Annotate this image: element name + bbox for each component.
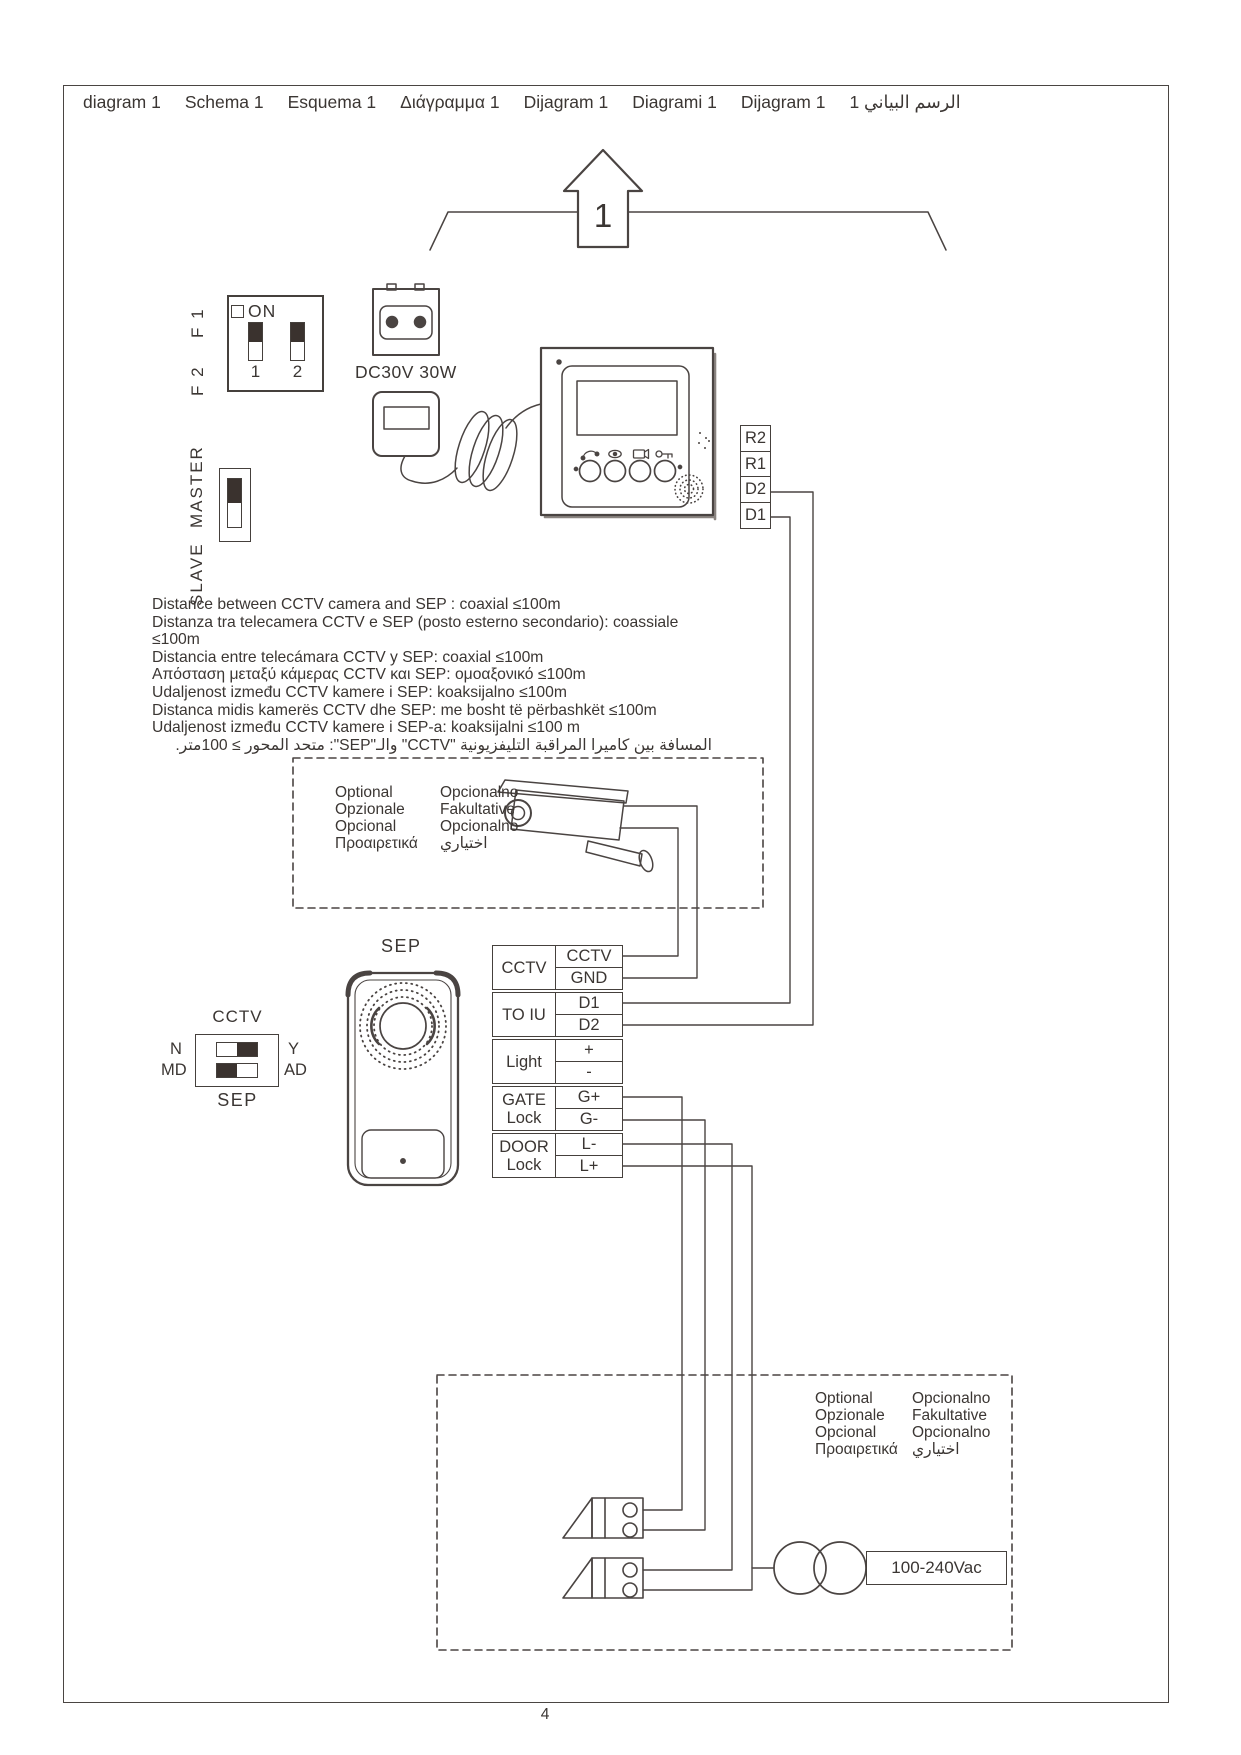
note-line: Distanza tra telecamera CCTV e SEP (post… xyxy=(152,614,712,649)
header-title: Dijagram 1 xyxy=(741,92,826,113)
terminal-group-label: CCTV xyxy=(493,946,556,989)
note-line-arabic: المسافة بين كاميرا المراقبة التليفزيونية… xyxy=(152,737,712,755)
terminal-l-plus: L+ xyxy=(556,1156,622,1177)
bracket-line xyxy=(430,212,946,250)
power-adapter xyxy=(373,392,541,494)
door-station-label: SEP xyxy=(381,936,422,957)
door-camera-lens xyxy=(380,1003,426,1049)
diagram-number: 1 xyxy=(578,197,628,235)
md-ad-switch[interactable] xyxy=(216,1063,258,1078)
wire-d1 xyxy=(623,517,790,1003)
terminal-gnd: GND xyxy=(556,968,622,989)
terminal-group-light: Light + - xyxy=(492,1039,623,1084)
monitor-button xyxy=(605,461,626,482)
intercom-icon xyxy=(634,450,649,459)
terminal-group-door-lock: DOORLock L- L+ xyxy=(492,1133,623,1178)
terminal-l-minus: L- xyxy=(556,1134,622,1156)
wire-gate-plus xyxy=(623,1097,682,1510)
switch-label-md: MD xyxy=(161,1061,187,1080)
switch-label-ad: AD xyxy=(284,1061,307,1080)
transformer-symbol xyxy=(774,1542,866,1594)
dip-switch-1[interactable] xyxy=(248,322,263,361)
header-title: Διάγραμμα 1 xyxy=(400,92,499,113)
note-line: Distanca midis kamerës CCTV dhe SEP: me … xyxy=(152,702,712,720)
master-slave-switch[interactable] xyxy=(219,468,251,542)
dip-label-f2: F 2 xyxy=(188,365,208,396)
manual-page: diagram 1 Schema 1 Esquema 1 Διάγραμμα 1… xyxy=(0,0,1241,1755)
note-line: Απόσταση μεταξύ κάμερας CCTV και SEP: ομ… xyxy=(152,666,712,684)
note-line: Distancia entre telecámara CCTV y SEP: c… xyxy=(152,649,712,667)
wire-gate-minus xyxy=(623,1120,705,1530)
optional-camera-labels-col1: Optional Opzionale Opcional Προαιρετικά xyxy=(335,785,418,853)
switch-label-n: N xyxy=(170,1040,182,1059)
page-number: 4 xyxy=(520,1706,570,1724)
optional-power-labels-col1: Optional Opzionale Opcional Προαιρετικά xyxy=(815,1391,898,1459)
note-line: Distance between CCTV camera and SEP : c… xyxy=(152,596,712,614)
indoor-monitor xyxy=(541,348,715,519)
note-line: Udaljenost između CCTV kamere i SEP: koa… xyxy=(152,684,712,702)
plug-pin xyxy=(387,317,398,328)
terminal-group-label: TO IU xyxy=(493,993,556,1036)
switch-label-y: Y xyxy=(288,1040,299,1059)
terminal-d1: D1 xyxy=(556,993,622,1015)
wiring-diagram-artwork xyxy=(0,0,1241,1755)
terminal-light-plus: + xyxy=(556,1040,622,1062)
terminal-group-label: Light xyxy=(493,1040,556,1083)
monitor-terminal-block: R2 R1 D2 D1 xyxy=(740,427,771,529)
terminal-cctv: CCTV xyxy=(556,946,622,968)
cctv-camera xyxy=(498,780,655,873)
dip-switch-2[interactable] xyxy=(290,322,305,361)
view-icon xyxy=(609,450,621,457)
cord-to-monitor xyxy=(506,404,541,428)
header-title: diagram 1 xyxy=(83,92,161,113)
monitor-button xyxy=(630,461,651,482)
monitor-button xyxy=(580,461,601,482)
header-title: Dijagram 1 xyxy=(524,92,609,113)
optional-power-labels-col2: Opcionalno Fakultative Opcionalno اختيار… xyxy=(912,1391,990,1459)
door-camera-dots xyxy=(360,983,446,1069)
terminal-group-gate-lock: GATELock G+ G- xyxy=(492,1086,623,1131)
door-station xyxy=(348,973,458,1185)
wire-door-minus xyxy=(623,1144,732,1570)
terminal-group-cctv: CCTV CCTV GND xyxy=(492,945,623,990)
cctv-switch-top-label: CCTV xyxy=(196,1007,279,1027)
terminal-group-label: DOORLock xyxy=(493,1134,556,1177)
header-title: الرسم البياني 1 xyxy=(849,92,960,113)
terminal-group-to-iu: TO IU D1 D2 xyxy=(492,992,623,1037)
gate-lock-symbol xyxy=(563,1498,643,1538)
power-plug xyxy=(373,284,439,355)
mains-voltage-label: 100-240Vac xyxy=(866,1551,1007,1585)
on-indicator-square xyxy=(231,305,244,318)
wire-camera-gnd xyxy=(623,806,697,978)
monitor-button xyxy=(655,461,676,482)
master-label: MASTER xyxy=(187,445,207,528)
terminal-light-minus: - xyxy=(556,1062,622,1083)
header-title: Schema 1 xyxy=(185,92,264,113)
talk-icon xyxy=(581,451,599,460)
terminal-r1: R1 xyxy=(740,451,771,478)
adapter-rating-label: DC30V 30W xyxy=(355,362,457,383)
on-label: ON xyxy=(248,301,276,322)
door-lock-symbol xyxy=(563,1558,643,1598)
terminal-r2: R2 xyxy=(740,425,771,452)
adapter-cord xyxy=(401,456,457,483)
header-title: Diagrami 1 xyxy=(632,92,717,113)
wire-camera-video xyxy=(620,828,678,956)
cctv-switch[interactable] xyxy=(216,1042,258,1057)
terminal-d1: D1 xyxy=(740,502,771,529)
camera-bracket xyxy=(586,841,642,866)
terminal-g-minus: G- xyxy=(556,1109,622,1130)
cctv-switch-bottom-label: SEP xyxy=(196,1090,279,1111)
terminal-d2: D2 xyxy=(740,476,771,503)
terminal-g-plus: G+ xyxy=(556,1087,622,1109)
header-title: Esquema 1 xyxy=(288,92,377,113)
unlock-icon xyxy=(656,451,672,458)
terminal-group-label: GATELock xyxy=(493,1087,556,1130)
dip-switch-1-label: 1 xyxy=(246,362,265,382)
dip-switch-2-label: 2 xyxy=(288,362,307,382)
distance-notes: Distance between CCTV camera and SEP : c… xyxy=(152,596,712,754)
monitor-screen xyxy=(577,381,677,435)
note-line: Udaljenost između CCTV kamere i SEP-a: k… xyxy=(152,719,712,737)
decor-dots xyxy=(698,432,710,449)
dip-label-f1: F 1 xyxy=(188,307,208,338)
page-header: diagram 1 Schema 1 Esquema 1 Διάγραμμα 1… xyxy=(83,92,961,113)
terminal-d2: D2 xyxy=(556,1015,622,1036)
optional-camera-labels-col2: Opcionalno Fakultative Opcionalno اختيار… xyxy=(440,785,518,853)
plug-pin xyxy=(415,317,426,328)
